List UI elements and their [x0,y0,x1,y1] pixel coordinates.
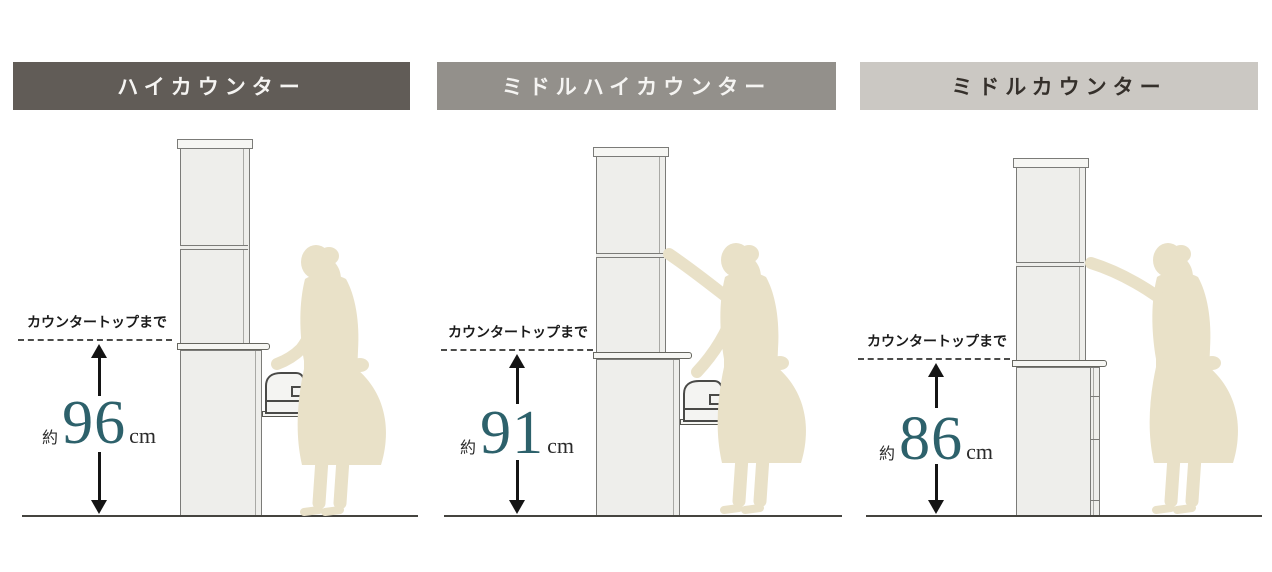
arrow-down-icon [928,500,944,514]
measure-value: 91 [480,406,544,462]
height-measurement: 約 96 cm [19,396,179,452]
countertop [177,343,270,350]
arrow-shaft [516,460,519,502]
countertop-dashed-line [858,358,1010,360]
countertop-dashed-line [18,339,172,341]
countertop-label: カウンタートップまで [437,322,599,342]
height-measurement: 約 86 cm [856,412,1016,468]
measure-unit: cm [547,433,574,459]
arrow-shaft [935,375,938,408]
countertop-label: カウンタートップまで [856,331,1018,351]
arrow-shaft [98,452,101,502]
panel-header: ミドルカウンター [860,62,1258,110]
arrow-down-icon [91,500,107,514]
cabinet-shelf-divider [180,245,248,250]
panel-header: ハイカウンター [13,62,410,110]
countertop-label: カウンタートップまで [16,312,178,332]
arrow-down-icon [509,500,525,514]
woman-silhouette [649,241,819,521]
arrow-shaft [935,464,938,502]
approx-prefix: 約 [460,434,476,458]
height-measurement: 約 91 cm [437,406,597,462]
panel-header: ミドルハイカウンター [437,62,836,110]
measure-unit: cm [966,439,993,465]
measure-value: 96 [62,396,126,452]
woman-silhouette [259,243,429,523]
approx-prefix: 約 [879,440,895,464]
approx-prefix: 約 [42,424,58,448]
measure-unit: cm [129,423,156,449]
woman-silhouette [1071,241,1241,521]
countertop-dashed-line [441,349,593,351]
lower-cabinet [180,350,262,517]
measure-value: 86 [899,412,963,468]
